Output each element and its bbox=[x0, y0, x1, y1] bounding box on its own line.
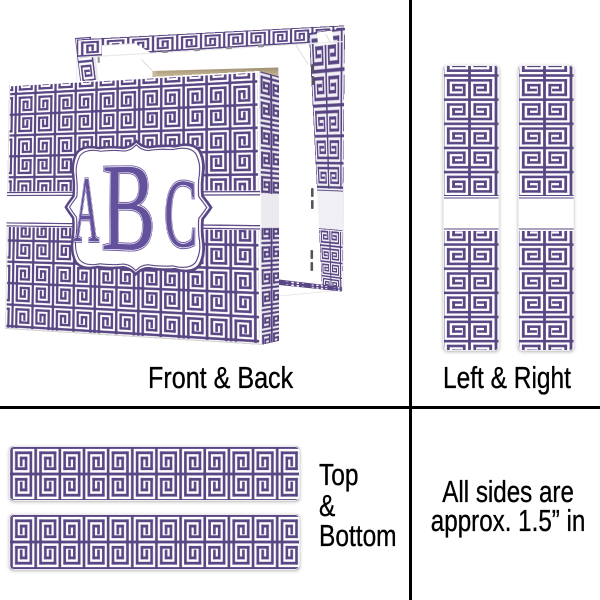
svg-text:C: C bbox=[164, 159, 197, 269]
svg-text:B: B bbox=[101, 136, 156, 278]
svg-text:A: A bbox=[73, 159, 99, 264]
